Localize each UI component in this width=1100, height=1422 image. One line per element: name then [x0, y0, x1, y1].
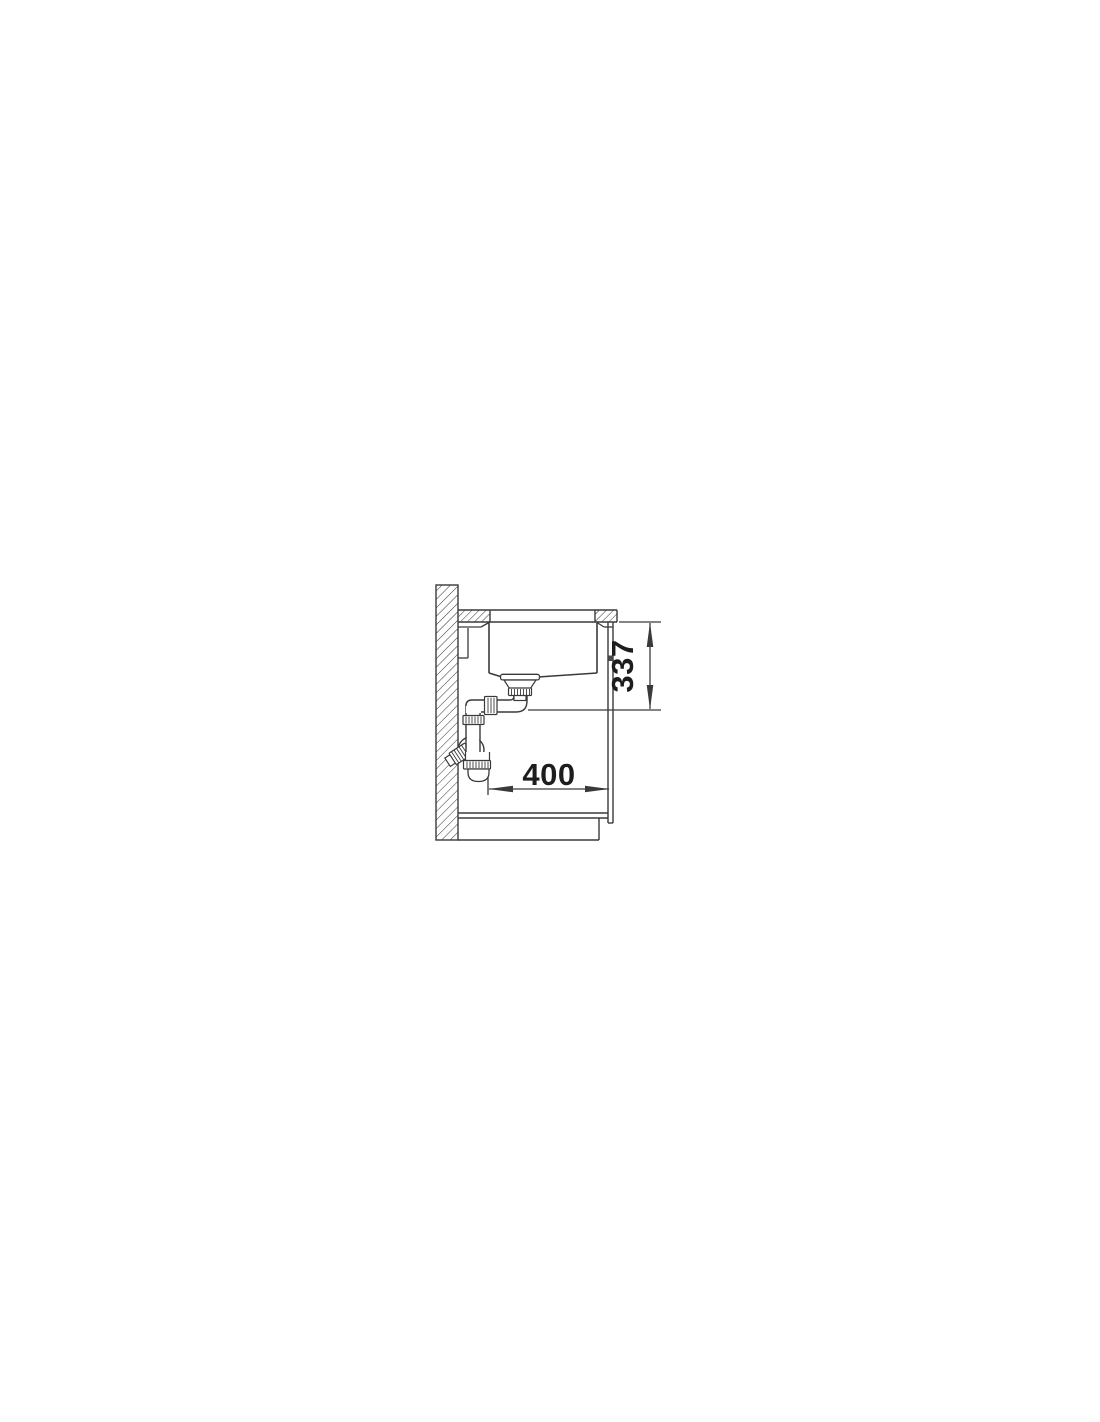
dim-337-arrow-up: [647, 623, 654, 648]
strainer-cup: [504, 680, 536, 689]
dim-400-arrow-left: [489, 786, 514, 793]
sink-bowl: [489, 622, 597, 677]
wall-rail: [458, 628, 468, 658]
dim-400-label: 400: [522, 757, 575, 792]
strainer-nut: [509, 688, 532, 696]
wall-hatch: [436, 585, 458, 840]
dim-400-arrow-right: [585, 786, 610, 793]
countertop-hatch-right: [595, 610, 617, 622]
countertop-hatch-left: [458, 610, 490, 622]
dim-337-label: 337: [605, 639, 640, 692]
cabinet-carcass: [458, 622, 613, 840]
technical-drawing: 337 400: [0, 0, 1100, 1422]
strainer-flange: [501, 674, 540, 680]
wall-section: [436, 585, 458, 840]
dim-337-arrow-down: [647, 685, 654, 710]
drawing-canvas: 337 400: [0, 0, 1100, 1422]
trap-big-nut: [464, 761, 491, 770]
countertop-section: [458, 610, 617, 622]
drop-pipe-body: [467, 706, 480, 758]
trap-cup: [468, 769, 489, 782]
sink-rim-flange: [458, 623, 613, 628]
